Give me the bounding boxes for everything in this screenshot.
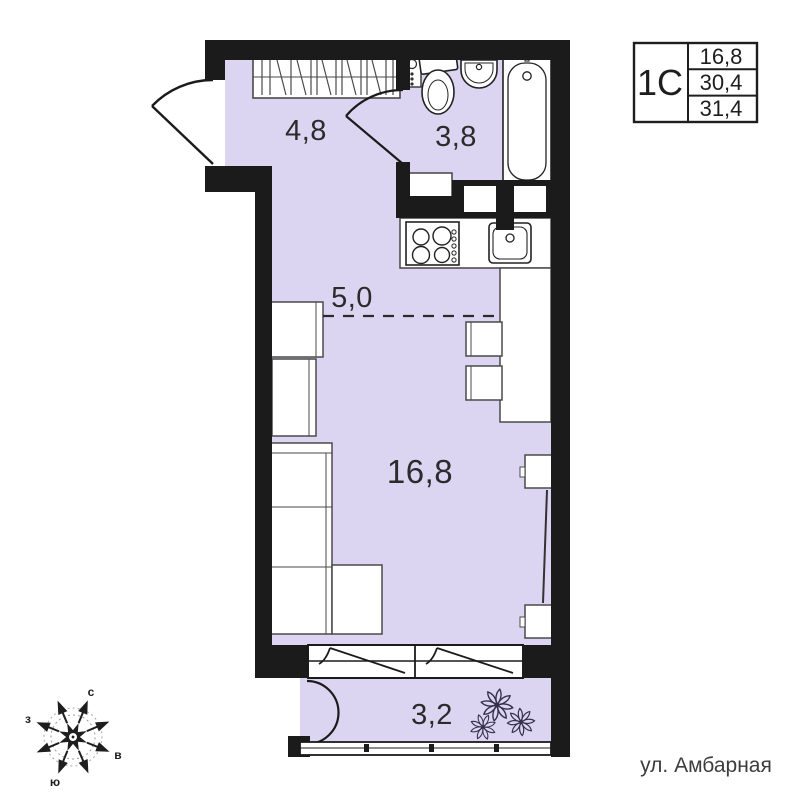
bar-stool bbox=[466, 366, 502, 400]
unit-area-1: 16,8 bbox=[700, 44, 743, 69]
bar-stool bbox=[466, 322, 502, 356]
floor-plan-page: 4,8 3,8 5,0 16,8 3,2 1С 16,8 30,4 31,4 bbox=[0, 0, 800, 799]
fridge bbox=[272, 359, 316, 436]
unit-area-2: 30,4 bbox=[700, 70, 743, 95]
hall-area-label: 4,8 bbox=[285, 115, 327, 147]
floor-plan-canvas: 4,8 3,8 5,0 16,8 3,2 1С 16,8 30,4 31,4 bbox=[0, 0, 800, 799]
bar-counter bbox=[500, 268, 551, 422]
living-area-label: 16,8 bbox=[387, 453, 453, 490]
unit-type-label: 1С bbox=[637, 62, 683, 103]
balcony-window bbox=[308, 645, 523, 678]
bathroom-area-label: 3,8 bbox=[435, 121, 477, 153]
bathtub bbox=[503, 48, 551, 186]
hall-wardrobe bbox=[253, 57, 400, 98]
compass-west-label: з bbox=[25, 712, 31, 726]
compass-east-label: в bbox=[114, 748, 121, 762]
balcony-glazing bbox=[300, 742, 551, 755]
kitchen-area-label: 5,0 bbox=[331, 282, 373, 314]
street-label: ул. Амбарная bbox=[640, 754, 772, 777]
compass-rose: с в ю з bbox=[24, 685, 123, 789]
unit-info-card: 1С 16,8 30,4 31,4 bbox=[634, 43, 757, 122]
compass-south-label: ю bbox=[50, 775, 60, 789]
compass-north-label: с bbox=[88, 685, 95, 699]
balcony-area-label: 3,2 bbox=[411, 699, 453, 731]
stove bbox=[406, 222, 459, 265]
unit-area-3: 31,4 bbox=[700, 96, 743, 121]
kitchen-cabinet bbox=[270, 302, 323, 357]
entrance-door bbox=[152, 80, 213, 164]
